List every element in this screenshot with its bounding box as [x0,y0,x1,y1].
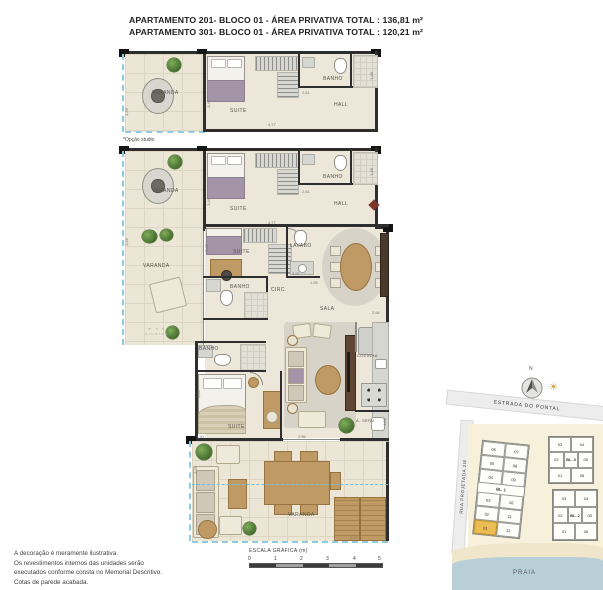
street-label: ESTRADA DO PONTAL [493,399,560,412]
desk-chair [266,411,278,423]
building-bl3: 0304 02BL. 305 0106 [548,436,594,484]
dimension: 2,89 [196,390,201,398]
wall [203,224,389,227]
pillow [211,59,226,68]
page-title: APARTAMENTO 201- BLOCO 01 - ÁREA PRIVATI… [129,15,423,38]
wall [280,371,282,440]
unit-cell: 03 [549,437,571,452]
bed [207,56,245,102]
dimension: 5,65 [193,466,198,474]
scale-segment [250,564,276,567]
closet-rack [277,72,299,98]
sun-lounger [360,497,386,541]
cushion [288,385,304,401]
scale-segment [356,564,382,567]
tv [347,352,350,392]
varanda-rail [192,541,388,543]
dimension: 3,57 [292,271,300,276]
room-label-banho: BANHO [323,174,343,180]
plant [339,418,354,433]
room-label-suite: SUITE [230,206,247,212]
building-label: BL. 3 [564,452,579,467]
armchair [219,516,242,535]
dimension: 3,40 [206,198,211,206]
room-label-suite: SUITE [228,424,245,430]
guardrail-line [192,484,388,485]
dimension: 3,40 [206,100,211,108]
dimension: 1,88 [369,72,374,80]
unit-cell-highlighted: 01 [473,519,497,535]
room-label-varanda: VARANDA [143,263,170,269]
room-label-hall: HALL [334,102,348,108]
scale-segment [303,564,329,567]
glass-door [283,439,340,440]
studio-watermark: m b b studios [145,326,169,336]
wall [286,276,320,278]
room-label-varanda: VARANDA [152,188,179,194]
closet-rack [255,153,299,168]
dimension: 1,85 [382,418,387,426]
wall [205,129,378,132]
dimension: 1,88 [369,168,374,176]
scale-tick: 0 [248,556,251,562]
coffee-table [315,365,341,395]
stool [248,377,259,388]
varanda-rail [189,441,191,541]
room-label-banho: BANHO [230,284,250,290]
varanda-rail [122,54,124,132]
pillow [223,378,242,389]
wall [350,151,352,185]
washbasin [302,57,315,68]
varanda-rail [125,131,205,133]
closet-rack [243,228,277,243]
lounge-chair [142,168,174,204]
floorplan-page: APARTAMENTO 201- BLOCO 01 - ÁREA PRIVATI… [0,0,603,590]
unit-cell: 02 [553,507,568,524]
cushion [288,351,304,367]
wall [298,54,300,88]
unit-cell: 01 [549,468,571,483]
unit-cell: 06 [571,468,593,483]
dimension: 2,61 [302,90,310,95]
scale-bar-title: ESCALA GRÁFICA (m) [249,548,383,554]
shower [353,55,378,88]
closet-rack [255,56,299,71]
scale-bar: ESCALA GRÁFICA (m) 0 1 2 3 4 5 [249,548,383,568]
wall [195,370,266,372]
scale-tick: 3 [326,556,329,562]
scale-segment [276,564,302,567]
armchair [312,323,332,339]
kitchen-sink [375,359,387,369]
toilet [334,155,347,171]
varanda-rail [122,151,124,345]
unit-cell: 04 [571,437,593,452]
bed [207,153,245,199]
dimension: 1,56 [124,238,129,246]
shower [353,152,378,185]
unit-cell: 05 [578,452,593,467]
scale-tick: 1 [274,556,277,562]
dimension: 2,47 [204,244,209,252]
shower [244,292,268,320]
cushion [288,368,304,384]
scale-bar-segments [249,563,383,568]
plant [243,522,256,535]
pouf [198,520,217,539]
building-label: BL. 2 [568,507,583,524]
armchair [216,445,240,464]
north-label: N [529,366,533,372]
note-line: Os revestimentos internos das unidades s… [14,559,162,569]
sun-icon: ☀ [549,382,558,393]
blanket [207,80,245,102]
pillow [227,156,242,165]
room-label-hall: HALL [334,201,348,207]
room-label-varanda: VARANDA [288,512,315,518]
scale-bar-ticks: 0 1 2 3 4 5 [249,556,383,563]
wall [286,224,288,278]
legal-notes: A decoração é meramente ilustrativa. Os … [14,549,162,587]
outdoor-chair [330,472,341,490]
closet-rack [277,169,299,195]
unit-cell: 06 [575,523,597,540]
room-label-circ: CIRC. [271,287,287,293]
unit-cell: 02 [549,452,564,467]
plant [160,229,173,241]
wall [298,151,300,185]
dimension: 2,86 [298,434,306,439]
vanity [206,279,221,292]
room-label-suite: SUITE [230,108,247,114]
room-label-varanda: VARANDA [152,90,179,96]
unit-cell: 04 [575,490,597,507]
room-label-banho: BANHO [323,76,343,82]
wall [350,54,352,88]
wall [203,276,268,278]
wall [355,410,389,412]
apartment-301-title: APARTAMENTO 301- BLOCO 01 - ÁREA PRIVATI… [129,27,423,39]
note-line: executados conforme consta no Memorial D… [14,568,162,578]
desk [263,391,281,429]
cushion [196,492,215,513]
apartment-201-title: APARTAMENTO 201- BLOCO 01 - ÁREA PRIVATI… [129,15,423,27]
lounge-chair [142,78,174,114]
unit-cell: 03 [553,490,575,507]
blanket [207,177,245,199]
toilet [220,290,233,306]
dimension: 4,77 [268,122,276,127]
washbasin [302,154,315,165]
dimension: 1,30 [196,434,204,439]
building-label: BL. 1 [496,487,506,493]
note-line: A decoração é meramente ilustrativa. [14,549,162,559]
room-label-suite: SUITE [233,249,250,255]
scale-tick: 2 [300,556,303,562]
outdoor-dining-table [264,461,330,505]
toilet [214,354,231,366]
watermark-line: studios [145,331,169,336]
scale-tick: 4 [353,556,356,562]
dimension: 1,56 [124,108,129,116]
sofa [285,347,307,403]
dimension: 1,55 [310,280,318,285]
dining-chair [330,246,341,256]
partition-wall [355,322,357,352]
scale-segment [329,564,355,567]
room-label-lavabo: LAVABO [290,243,312,249]
dimension: 2,61 [302,189,310,194]
compass-icon [521,377,543,399]
armchair [298,411,326,428]
dining-table [340,243,372,291]
plant [142,230,157,243]
plant [196,444,212,460]
pillow [227,59,242,68]
scale-tick: 5 [378,556,381,562]
shower [240,344,266,372]
unit-cell: 05 [582,507,597,524]
pillow [211,156,226,165]
plant [167,58,181,72]
room-label-banho: BANHO [199,346,219,352]
studio-option-note: *Opção studio [123,137,154,143]
stove [361,383,387,407]
dimension: 2,66 [372,310,380,315]
wall [203,318,268,320]
side-table [287,403,298,414]
room-label-sala: SALA [320,306,334,312]
closet-rack [268,244,292,274]
room-label-cozinha: COZINHA [357,353,378,358]
cushion [196,470,215,491]
dimension: 4,97 [350,535,358,540]
building-bl1: 0607 0508 0409 BL. 1 0310 0211 0112 [472,440,530,539]
wall [195,341,266,343]
wall [203,54,206,132]
building-bl2: 0304 02BL. 205 0106 [552,489,598,541]
side-table [287,335,298,346]
note-line: Cotas de parede acabada. [14,578,162,588]
sideboard [380,233,389,297]
toilet [334,58,347,74]
unit-cell: 01 [553,523,575,540]
beach-label: PRAIA [513,570,536,576]
pillow [203,378,222,389]
plant [168,155,182,169]
unit-cell: 12 [496,522,520,538]
room-label-aserv: Á. SERV. [356,418,376,423]
dining-chair [330,278,341,288]
